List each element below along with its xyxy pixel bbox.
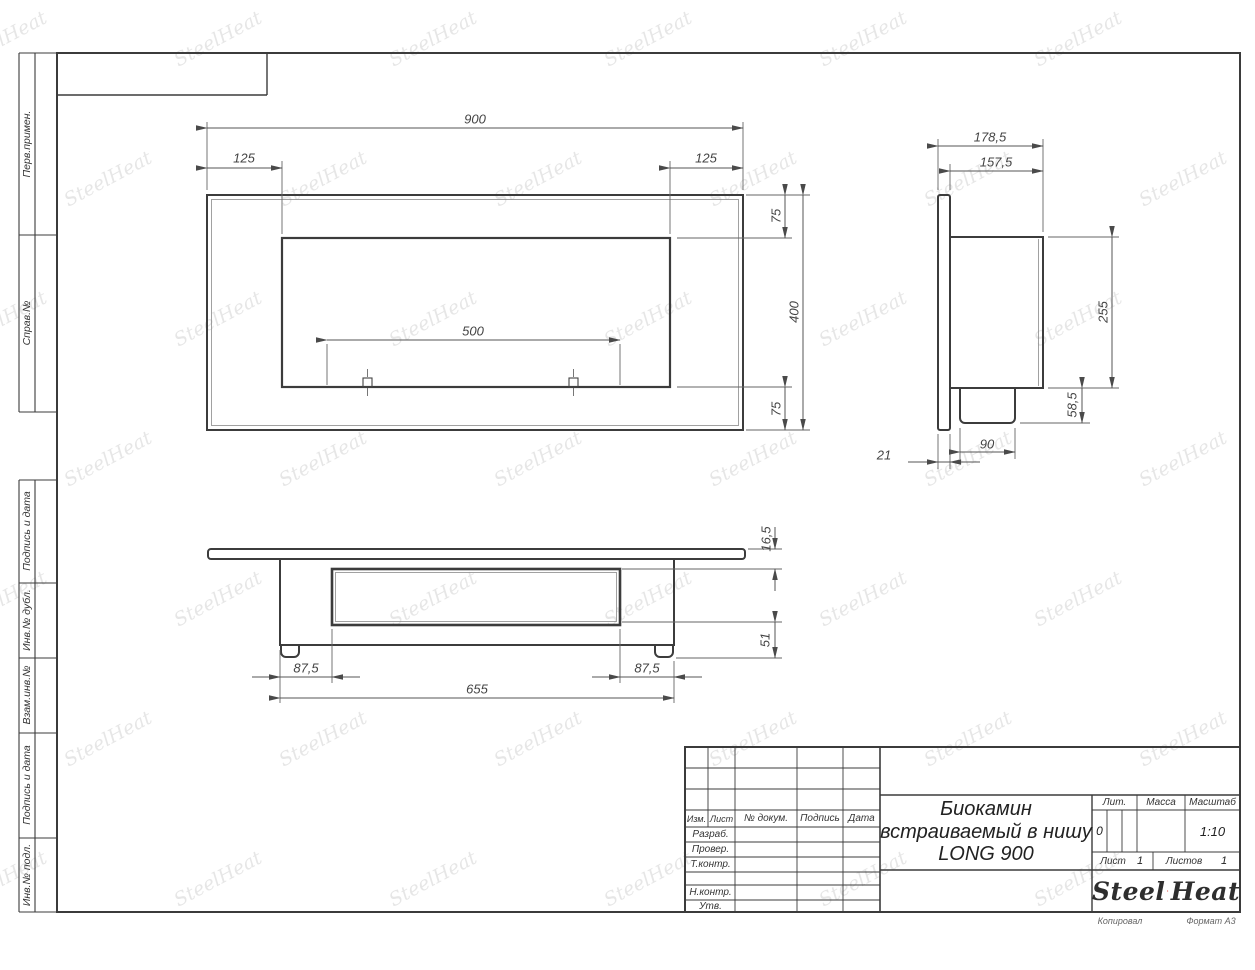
margin-label-podpis-data-1: Подпись и дата — [21, 491, 33, 570]
stamp-row-prover: Провер. — [686, 842, 735, 857]
margin-label-podpis-data-2: Подпись и дата — [21, 745, 33, 824]
dim-bottom-lip: 16,5 — [759, 526, 774, 551]
dim-side-box-height: 58,5 — [1065, 392, 1080, 417]
stamp-row-utv: Утв. — [686, 900, 735, 912]
doc-title-line-2: встраиваемый в нишу — [880, 821, 1092, 844]
stamp-lit-label: Лит. — [1092, 795, 1137, 810]
stamp-sheets-label: Листов — [1158, 852, 1210, 870]
side-view — [908, 139, 1119, 469]
format-label: Формат A3 — [1180, 916, 1242, 926]
margin-label-sprav-no: Справ.№ — [21, 301, 33, 346]
margin-label-inv-dubl: Инв.№ дубл. — [21, 589, 33, 651]
dim-side-box-depth: 90 — [980, 437, 994, 452]
dim-bottom-right-margin: 87,5 — [634, 661, 659, 676]
bottom-view — [208, 527, 782, 703]
margin-label-perv-primen: Перв.примен. — [21, 111, 33, 178]
sheet-frame — [19, 53, 1240, 912]
stamp-col-sign: Подпись — [797, 810, 843, 827]
steelheat-logo: Steel Heat — [1092, 870, 1240, 912]
stamp-lit-value: 0 — [1092, 810, 1107, 852]
front-view — [207, 122, 810, 430]
dim-side-depth-total: 178,5 — [974, 130, 1007, 145]
stamp-row-tkontr: Т.контр. — [686, 857, 735, 872]
dim-bottom-body-width: 655 — [466, 682, 488, 697]
dim-front-top-inset: 75 — [769, 209, 784, 223]
stamp-sheet-value: 1 — [1130, 852, 1150, 870]
dim-front-height: 400 — [787, 301, 802, 323]
stamp-scale-value: 1:10 — [1185, 810, 1240, 852]
copied-label: Копировал — [1085, 916, 1155, 926]
dim-side-depth-body: 157,5 — [980, 155, 1013, 170]
stamp-row-nkontr: Н.контр. — [686, 885, 735, 900]
dim-bottom-inset-depth: 51 — [758, 633, 773, 647]
dim-side-body-height: 255 — [1096, 301, 1111, 323]
stamp-col-date: Дата — [843, 810, 880, 827]
doc-title-line-1: Биокамин — [940, 798, 1032, 821]
dim-front-left-inset: 125 — [233, 151, 255, 166]
margin-label-inv-podl: Инв.№ подл. — [21, 844, 33, 906]
burner-clips — [363, 378, 578, 387]
stamp-col-doc-num: № докум. — [735, 810, 797, 827]
margin-label-vzam-inv: Взам.инв.№ — [21, 665, 33, 724]
logo-heat-text: Heat — [1171, 877, 1240, 906]
stamp-mass-label: Масса — [1137, 795, 1185, 810]
dim-front-right-inset: 125 — [695, 151, 717, 166]
doc-title: Биокамин встраиваемый в нишу LONG 900 — [882, 796, 1090, 868]
flame-icon — [1167, 877, 1168, 905]
logo-steel-text: Steel — [1092, 877, 1165, 906]
stamp-sheets-value: 1 — [1212, 852, 1236, 870]
stamp-sheet-label: Лист — [1094, 852, 1132, 870]
drawing-sheet: SteelHeatSteelHeatSteelHeatSteelHeatStee… — [0, 0, 1255, 970]
stamp-scale-label: Масштаб — [1185, 795, 1240, 810]
dim-bottom-left-margin: 87,5 — [293, 661, 318, 676]
dim-front-opening: 500 — [462, 324, 484, 339]
stamp-row-razrab: Разраб. — [686, 827, 735, 842]
stamp-col-list: Лист — [708, 810, 735, 827]
stamp-col-izm: Изм. — [685, 810, 708, 827]
dim-front-width: 900 — [464, 112, 486, 127]
dim-front-bottom-inset: 75 — [769, 402, 784, 416]
doc-title-line-3: LONG 900 — [938, 843, 1034, 866]
dim-side-panel-thickness: 21 — [877, 448, 891, 463]
